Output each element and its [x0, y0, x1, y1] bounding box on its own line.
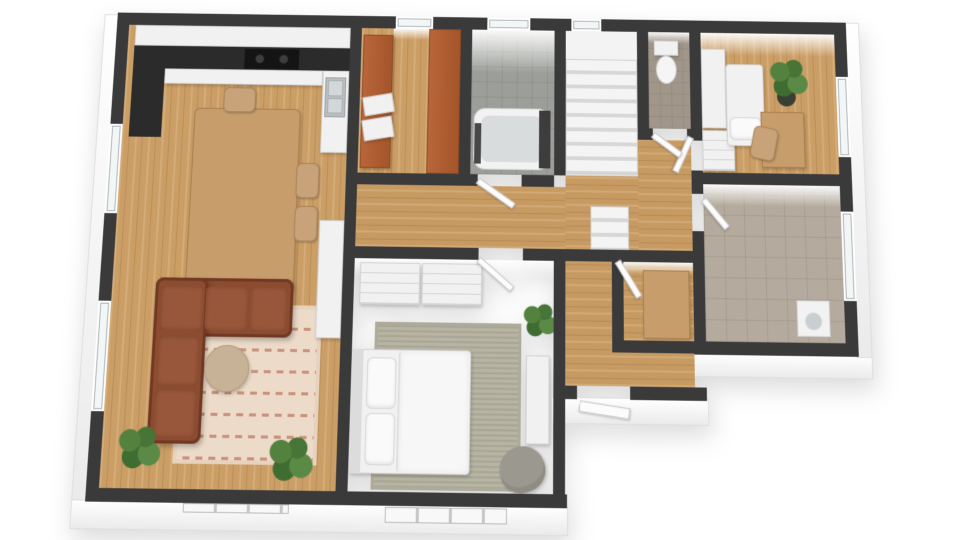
- floor-hall-south-east: [612, 352, 695, 387]
- wall-bath-stairs: [554, 19, 566, 176]
- wall-hallway-south-right: [523, 249, 705, 263]
- master-bed-pillow-1: [366, 357, 397, 409]
- window-south-master: [385, 507, 507, 525]
- kitchen-sink-basin-1: [328, 80, 344, 96]
- wall-nook-south: [612, 340, 706, 354]
- window-south-living: [183, 503, 290, 514]
- northwall-face-closet: [393, 28, 429, 40]
- wall-bedroom2-south: [691, 172, 839, 186]
- living-tall-cabinet: [315, 220, 344, 338]
- dining-chair-east-1: [295, 163, 319, 198]
- kitchen-cooktop: [244, 49, 299, 70]
- wall-hallway-north-right: [522, 175, 555, 187]
- bathtub-inner: [481, 116, 542, 163]
- bedroom2-plant: [766, 55, 811, 103]
- living-plant-1: [113, 422, 166, 475]
- sofa-cushion-2: [204, 286, 249, 331]
- floor-hall-south: [565, 261, 612, 386]
- wall-hallway-south-left: [343, 246, 478, 260]
- washing-machine: [796, 300, 830, 337]
- wall-master-hall: [553, 249, 565, 494]
- bath-fixture-left: [474, 123, 481, 164]
- nook-cabinet: [643, 270, 691, 339]
- wall-south-hall-right: [630, 387, 707, 401]
- northwall-face-bathroom: [472, 30, 555, 74]
- window-north-stairs: [571, 19, 601, 32]
- master-wardrobe-2: [421, 263, 482, 306]
- bath-fixture-right: [539, 111, 551, 169]
- dining-chair-east-2: [294, 206, 318, 242]
- stairs-lower-steps: [590, 206, 629, 250]
- exterior-face-south-hall: [551, 397, 709, 426]
- wall-stairs-wc: [637, 20, 649, 129]
- northwall-face-utility: [703, 184, 840, 207]
- toilet-tank: [654, 40, 679, 55]
- master-bed-duvet: [396, 351, 469, 472]
- kitchen-counter-front: [164, 68, 323, 85]
- floorplan-scene: [0, 0, 960, 540]
- dining-table: [185, 108, 301, 292]
- master-wardrobe-1: [359, 262, 420, 305]
- sofa-cushion-4: [156, 336, 200, 386]
- master-bed-pillow-2: [364, 413, 395, 466]
- closet-wardrobe-right: [426, 29, 461, 174]
- window-north-bathroom: [487, 18, 530, 31]
- wall-wc-bedroom2: [689, 20, 702, 132]
- wall-hall-utility-low: [692, 231, 706, 341]
- kitchen-counter-top: [133, 45, 350, 71]
- sofa-cushion-1: [159, 285, 204, 330]
- sofa-cushion-3: [249, 287, 288, 332]
- dining-chair-north: [223, 87, 256, 112]
- wall-closet-bath: [459, 17, 473, 174]
- wall-wc-south-left: [638, 128, 653, 140]
- floor-stairs-landing: [566, 31, 637, 60]
- window-north-closet: [396, 16, 434, 29]
- stairs-flight: [566, 59, 639, 175]
- floorplan: [85, 13, 865, 513]
- wall-hallway-north-left: [357, 173, 478, 186]
- master-sideboard: [525, 355, 549, 444]
- kitchen-sink-basin-2: [327, 98, 343, 113]
- living-plant-2: [264, 432, 318, 487]
- toilet-bowl: [656, 55, 677, 84]
- bedroom2-wardrobe: [701, 49, 727, 129]
- wall-south-right-block: [694, 341, 859, 357]
